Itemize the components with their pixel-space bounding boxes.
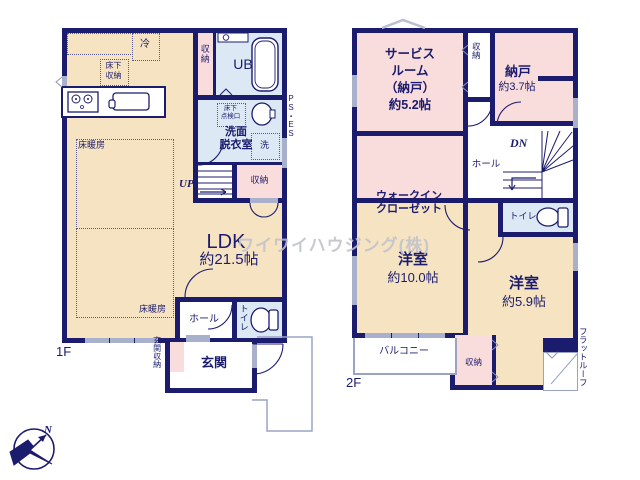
porch-outline: [252, 337, 312, 431]
label-inspection-hatch: 床下 点検口: [217, 105, 244, 121]
label-storage-2f: 収納: [455, 357, 492, 367]
floor-heating-outline-a: [76, 139, 174, 229]
room-storage-ub-side: [198, 33, 213, 95]
window: [282, 138, 287, 168]
label-bedroom1-size: 約10.0帖: [378, 270, 448, 286]
label-hall-2f: ホール: [466, 159, 506, 170]
label-floor-heating-b: 床暖房: [139, 304, 166, 315]
label-storage-ub-side: 収納: [199, 44, 210, 64]
room-wic: [357, 136, 463, 198]
room-bedroom2-lower: [496, 333, 543, 385]
label-bedroom2-name: 洋室: [494, 275, 554, 293]
entrance-hall-opening: [186, 335, 210, 342]
wall: [503, 232, 573, 237]
window: [85, 338, 158, 343]
label-hall-1f: ホール: [180, 314, 228, 326]
label-wic: ウォークイン クローゼット: [358, 190, 460, 216]
ldk-double-door-opening: [250, 198, 278, 203]
window: [352, 256, 357, 305]
label-unit-bath: UB: [228, 56, 258, 73]
label-nando-name: 納戸: [495, 64, 541, 80]
window-tick: [418, 333, 419, 338]
window: [573, 98, 578, 128]
label-flat-roof: フラットルーフ: [578, 327, 588, 387]
label-washer: 洗: [251, 140, 278, 151]
label-toilet-1f: トイレ: [238, 304, 249, 331]
watermark-text: ワイワイハウジング(株): [237, 231, 430, 256]
label-entrance-storage: 玄関収納: [152, 336, 162, 368]
compass-north-label: N: [44, 424, 52, 437]
flat-roof-area: [543, 352, 578, 391]
window-tick: [134, 338, 135, 343]
roof-gable-mark: [382, 20, 425, 28]
window: [62, 76, 67, 90]
window-tick: [109, 338, 110, 343]
window: [365, 333, 445, 338]
wall: [495, 121, 578, 126]
label-storage-top: 収納: [471, 42, 481, 59]
nando-wall-stub: [538, 76, 578, 81]
wall: [492, 335, 496, 385]
entrance-door-opening: [252, 344, 257, 368]
label-up: UP: [179, 178, 194, 191]
wall: [352, 131, 463, 136]
label-toilet-2f: トイレ: [505, 211, 541, 222]
label-floor2: 2F: [346, 375, 361, 391]
label-underfloor-storage: 床下 収納: [98, 61, 129, 80]
label-balcony: バルコニー: [368, 346, 440, 358]
window-tick: [391, 333, 392, 338]
label-pipe-space: PS・ES: [286, 94, 296, 138]
label-bedroom2-size: 約5.9帖: [489, 294, 559, 310]
label-fridge: 冷: [132, 39, 158, 51]
window: [573, 243, 578, 271]
kitchen-cupboard-outline: [67, 33, 133, 55]
label-storage-stair-side: 収納: [237, 175, 282, 186]
wall: [463, 33, 468, 198]
wall: [468, 97, 490, 102]
floorplan-canvas: 冷 床下 収納 床暖房 床暖房 収納 UB 床下 点検口 洗面 脱衣室 洗 PS…: [0, 0, 640, 480]
label-floor-heating-a: 床暖房: [78, 140, 105, 151]
label-nando-size: 約3.7帖: [491, 81, 543, 94]
label-entrance: 玄関: [186, 355, 242, 371]
room-entrance-storage: [170, 342, 184, 372]
label-dn: DN: [510, 136, 527, 150]
label-floor1: 1F: [56, 344, 71, 360]
label-service-room: サービス ルーム （納戸） 約5.2帖: [362, 46, 458, 114]
wall: [498, 203, 503, 237]
window: [352, 75, 357, 107]
stairs-up-area: [198, 165, 232, 198]
